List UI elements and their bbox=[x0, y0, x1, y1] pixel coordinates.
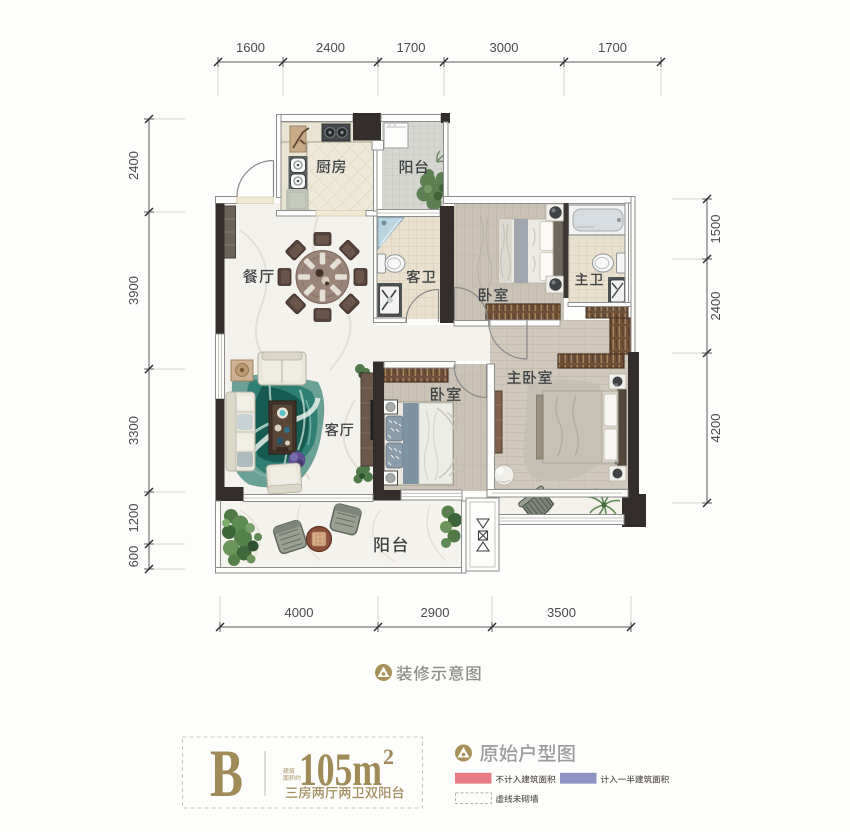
svg-text:1700: 1700 bbox=[397, 40, 426, 55]
svg-text:3500: 3500 bbox=[547, 605, 576, 620]
svg-text:1500: 1500 bbox=[708, 215, 723, 244]
svg-text:3000: 3000 bbox=[490, 40, 519, 55]
svg-text:1200: 1200 bbox=[126, 504, 141, 533]
svg-text:4200: 4200 bbox=[708, 414, 723, 443]
svg-text:600: 600 bbox=[126, 546, 141, 568]
svg-text:3900: 3900 bbox=[126, 276, 141, 305]
svg-text:2400: 2400 bbox=[708, 292, 723, 321]
svg-text:2400: 2400 bbox=[126, 151, 141, 180]
svg-text:3300: 3300 bbox=[126, 416, 141, 445]
svg-text:2900: 2900 bbox=[421, 605, 450, 620]
svg-text:4000: 4000 bbox=[285, 605, 314, 620]
svg-text:1700: 1700 bbox=[598, 40, 627, 55]
svg-text:1600: 1600 bbox=[236, 40, 265, 55]
svg-text:2: 2 bbox=[383, 744, 394, 769]
svg-text:B: B bbox=[210, 735, 243, 811]
svg-text:2400: 2400 bbox=[316, 40, 345, 55]
